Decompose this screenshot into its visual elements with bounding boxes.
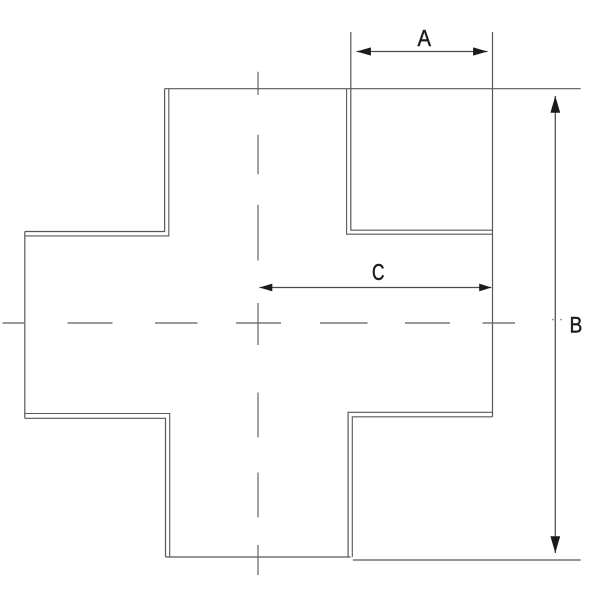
svg-text:B: B [569,313,582,338]
svg-text:C: C [372,260,385,286]
svg-text:A: A [417,25,431,52]
